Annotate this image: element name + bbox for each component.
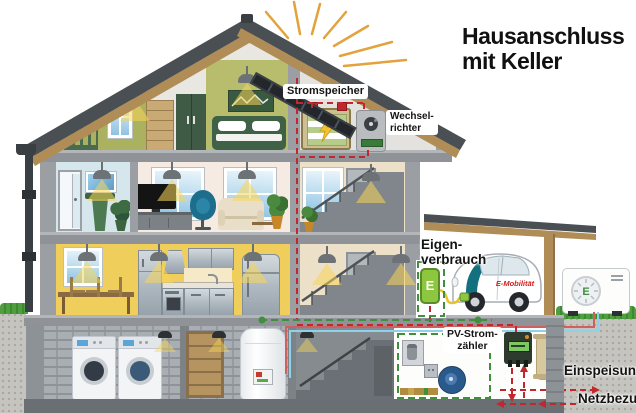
washer-display (123, 340, 134, 346)
socket-box (424, 364, 438, 378)
kitchen-lower-cabinets (184, 288, 234, 316)
wallbox-letter: E (426, 278, 435, 293)
wall-lamp-icon (300, 331, 314, 352)
house-energy-diagram: E E-Mobilität E (0, 0, 636, 413)
dining-chair (70, 277, 73, 297)
label-pv-meter: PV-Strom- zähler (443, 327, 502, 353)
label-inverter: Wechsel- richter (386, 110, 438, 135)
heat-pump: E (562, 268, 630, 314)
label-feed-in: Einspeisung (564, 364, 636, 379)
retaining-wall (546, 319, 564, 402)
title-line1: Hausanschluss (462, 24, 636, 49)
earth-left (0, 312, 26, 413)
wall-lamp-icon (158, 331, 172, 352)
page-title: Hausanschluss mit Keller (462, 24, 636, 74)
washer-display (77, 340, 88, 346)
pv-meter-lcd (508, 341, 530, 352)
faucet-icon (208, 274, 218, 284)
basement-left-wall (26, 318, 44, 402)
ground-floor-slab (24, 315, 564, 326)
washing-machine (72, 336, 116, 400)
circulation-pump (438, 366, 466, 394)
heater-display (253, 369, 273, 385)
car-brand-label: E-Mobilität (496, 279, 535, 288)
wall-lamp-icon (212, 331, 226, 352)
label-grid-supply: Netzbezug (578, 392, 636, 407)
foundation (24, 399, 564, 413)
washing-machine (118, 336, 162, 400)
pv-meter-device (504, 332, 532, 364)
label-storage: Stromspeicher (283, 84, 368, 99)
meter-cabinet (402, 340, 424, 366)
label-self-consumption: Eigen- verbrauch (421, 238, 486, 268)
pipe-manifold (400, 388, 438, 395)
water-heater (240, 328, 286, 400)
wallbox-charger: E (420, 268, 440, 304)
grass-left (0, 303, 28, 314)
heatpump-letter: E (582, 286, 589, 298)
dining-chair (119, 277, 122, 297)
oven (162, 288, 184, 316)
title-line2: mit Keller (462, 49, 636, 74)
